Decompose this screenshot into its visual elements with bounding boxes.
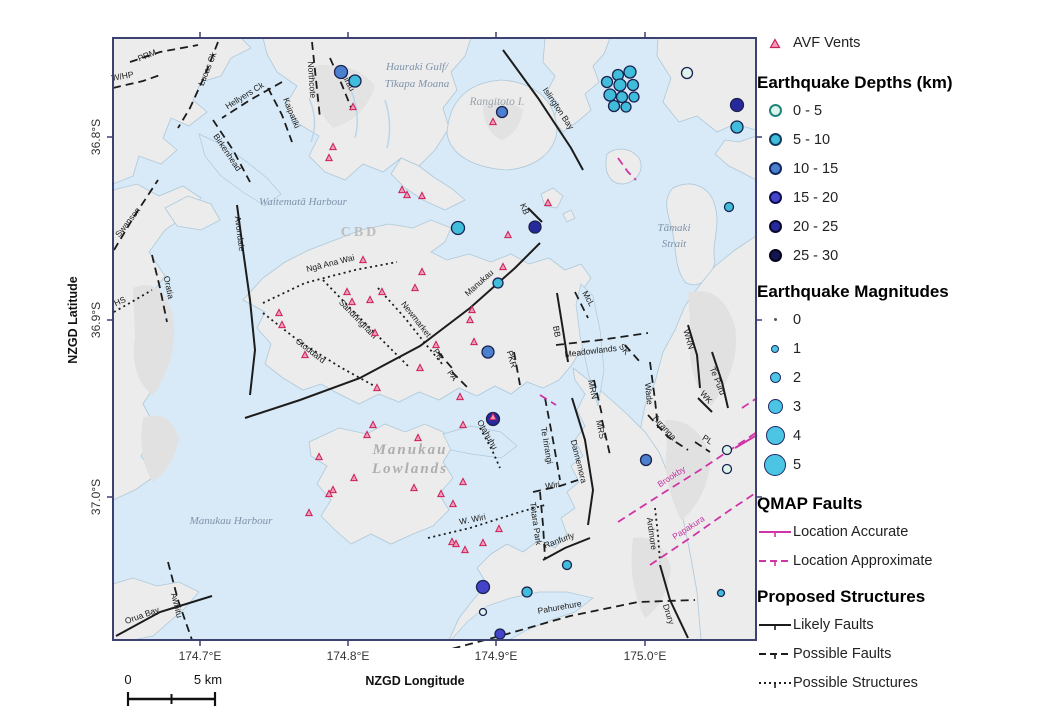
legend-depth-item-5-10-symbol (757, 133, 793, 146)
earthquake-marker-depth-5-10 (621, 102, 631, 112)
earthquake-marker-depth-20-25 (731, 99, 744, 112)
earthquake-marker-depth-10-15 (335, 66, 348, 79)
legend-qmap-location-accurate-label: Location Accurate (793, 524, 908, 540)
place-label-waitemat-harbour: Waitematā Harbour (259, 196, 348, 208)
earthquake-marker-depth-15-20 (495, 629, 505, 639)
earthquake-marker-depth-5-10 (614, 79, 626, 91)
legend-qmap-location-approximate-label: Location Approximate (793, 553, 932, 569)
y-tick-label: 36.8°S (89, 119, 103, 155)
legend-depth-item-5-10-label: 5 - 10 (793, 132, 830, 148)
legend-magnitude-item-4: 4 (757, 421, 1047, 450)
legend-qmap-items: Location AccurateLocation Approximate (757, 517, 1047, 575)
legend-magnitude-item-1-symbol (757, 345, 793, 353)
place-label-cbd: CBD (341, 225, 380, 240)
avf-vent-icon (757, 38, 793, 49)
legend-depth-item-20-25: 20 - 25 (757, 212, 1047, 241)
legend-magnitude-item-5-label: 5 (793, 457, 801, 473)
earthquake-marker-depth-5-10 (725, 203, 734, 212)
legend-qmap-location-accurate-symbol (757, 525, 793, 539)
legend-magnitudes-items: 012345 (757, 305, 1047, 479)
legend-magnitude-item-0: 0 (757, 305, 1047, 334)
earthquake-marker-depth-5-10 (609, 101, 620, 112)
x-axis-label: NZGD Longitude (365, 674, 464, 688)
legend-magnitude-item-2-symbol (757, 372, 793, 383)
x-tick-label: 174.8°E (327, 649, 370, 663)
legend-depth-item-20-25-label: 20 - 25 (793, 219, 838, 235)
legend-proposed-possible-structures: Possible Structures (757, 668, 1047, 697)
scale-five-label: 5 km (194, 672, 222, 687)
earthquake-marker-depth-10-15 (641, 455, 652, 466)
legend-proposed-likely-faults: Likely Faults (757, 610, 1047, 639)
legend-depth-item-15-20-symbol (757, 191, 793, 204)
scale-bar: 0 5 km (120, 672, 240, 718)
legend-depth-item-25-30: 25 - 30 (757, 241, 1047, 270)
legend-depths-items: 0 - 55 - 1010 - 1515 - 2020 - 2525 - 30 (757, 96, 1047, 270)
earthquake-marker-depth-0-5 (682, 68, 693, 79)
earthquake-marker-depth-5-10 (522, 587, 532, 597)
legend-depth-item-0-5: 0 - 5 (757, 96, 1047, 125)
legend-depth-item-10-15-label: 10 - 15 (793, 161, 838, 177)
legend-depth-item-0-5-label: 0 - 5 (793, 103, 822, 119)
legend-qmap-location-accurate: Location Accurate (757, 517, 1047, 546)
legend-proposed-possible-faults-label: Possible Faults (793, 646, 891, 662)
scale-zero-label: 0 (124, 672, 131, 687)
place-label-manukau-harbour: Manukau Harbour (189, 515, 274, 527)
legend-proposed-possible-structures-symbol (757, 676, 793, 690)
legend-magnitude-item-5: 5 (757, 450, 1047, 479)
earthquake-marker-depth-5-10 (452, 222, 465, 235)
earthquake-marker-depth-5-10 (718, 590, 725, 597)
earthquake-marker-depth-5-10 (624, 66, 636, 78)
place-label-rangitoto-i: Rangitoto I. (469, 96, 525, 108)
map: PRMW/HPLucas CkHellyers CkKaipatikiBirke… (105, 30, 764, 648)
earthquake-marker-depth-5-10 (731, 121, 743, 133)
legend-proposed-title: Proposed Structures (757, 584, 1047, 610)
legend-proposed-likely-faults-symbol (757, 618, 793, 632)
legend-depth-item-10-15: 10 - 15 (757, 154, 1047, 183)
legend-magnitude-item-2: 2 (757, 363, 1047, 392)
y-axis-label: NZGD Latitude (66, 276, 80, 364)
legend-qmap-title: QMAP Faults (757, 491, 1047, 517)
earthquake-marker-depth-5-10 (604, 89, 616, 101)
earthquake-marker-depth-5-10 (493, 278, 503, 288)
legend-qmap-location-approximate: Location Approximate (757, 546, 1047, 575)
legend-depth-item-10-15-symbol (757, 162, 793, 175)
earthquake-marker-depth-15-20 (477, 581, 490, 594)
legend-magnitude-item-4-label: 4 (793, 428, 801, 444)
earthquake-marker-depth-20-25 (529, 221, 541, 233)
x-tick-label: 174.9°E (475, 649, 518, 663)
legend-magnitude-item-4-symbol (757, 426, 793, 445)
earthquake-marker-depth-5-10 (629, 92, 639, 102)
legend-proposed-possible-faults-symbol (757, 647, 793, 661)
earthquake-marker-depth-5-10 (617, 92, 628, 103)
legend-depths-title: Earthquake Depths (km) (757, 70, 1047, 96)
legend: AVF Vents Earthquake Depths (km) 0 - 55 … (757, 28, 1047, 697)
x-tick-label: 175.0°E (624, 649, 667, 663)
legend-magnitude-item-3-label: 3 (793, 399, 801, 415)
legend-magnitude-item-0-label: 0 (793, 312, 801, 328)
legend-proposed-likely-faults-label: Likely Faults (793, 617, 874, 633)
x-tick-label: 174.7°E (179, 649, 222, 663)
y-tick-label: 37.0°S (89, 479, 103, 515)
legend-depth-item-15-20-label: 15 - 20 (793, 190, 838, 206)
legend-magnitude-item-2-label: 2 (793, 370, 801, 386)
y-tick-label: 36.9°S (89, 302, 103, 338)
legend-depth-item-25-30-symbol (757, 249, 793, 262)
earthquake-marker-depth-10-15 (497, 107, 508, 118)
legend-proposed-items: Likely FaultsPossible FaultsPossible Str… (757, 610, 1047, 697)
legend-magnitude-item-1: 1 (757, 334, 1047, 363)
earthquake-marker-depth-5-10 (349, 75, 361, 87)
map-figure: PRMW/HPLucas CkHellyers CkKaipatikiBirke… (0, 0, 1050, 723)
legend-depth-item-15-20: 15 - 20 (757, 183, 1047, 212)
legend-proposed-possible-faults: Possible Faults (757, 639, 1047, 668)
earthquake-marker-depth-5-10 (602, 77, 613, 88)
earthquake-marker-depth-5-10 (563, 561, 572, 570)
legend-avf-vents: AVF Vents (757, 28, 1047, 58)
legend-magnitude-item-1-label: 1 (793, 341, 801, 357)
legend-magnitude-item-0-symbol (757, 318, 793, 321)
legend-avf-vents-label: AVF Vents (793, 35, 860, 51)
legend-depth-item-0-5-symbol (757, 104, 793, 117)
fault-label-bb: BB (551, 325, 563, 338)
earthquake-marker-depth-0-5 (723, 446, 732, 455)
scale-bar-graphic (120, 688, 240, 710)
legend-proposed-possible-structures-label: Possible Structures (793, 675, 918, 691)
earthquake-marker-depth-0-5 (723, 465, 732, 474)
legend-magnitude-item-3: 3 (757, 392, 1047, 421)
earthquake-marker-depth-5-10 (628, 80, 639, 91)
earthquake-marker-depth-0-5 (480, 609, 487, 616)
legend-magnitude-item-5-symbol (757, 454, 793, 476)
legend-qmap-location-approximate-symbol (757, 554, 793, 568)
legend-magnitudes-title: Earthquake Magnitudes (757, 279, 1047, 305)
earthquake-marker-depth-10-15 (482, 346, 494, 358)
legend-depth-item-5-10: 5 - 10 (757, 125, 1047, 154)
legend-magnitude-item-3-symbol (757, 399, 793, 414)
legend-depth-item-25-30-label: 25 - 30 (793, 248, 838, 264)
legend-depth-item-20-25-symbol (757, 220, 793, 233)
